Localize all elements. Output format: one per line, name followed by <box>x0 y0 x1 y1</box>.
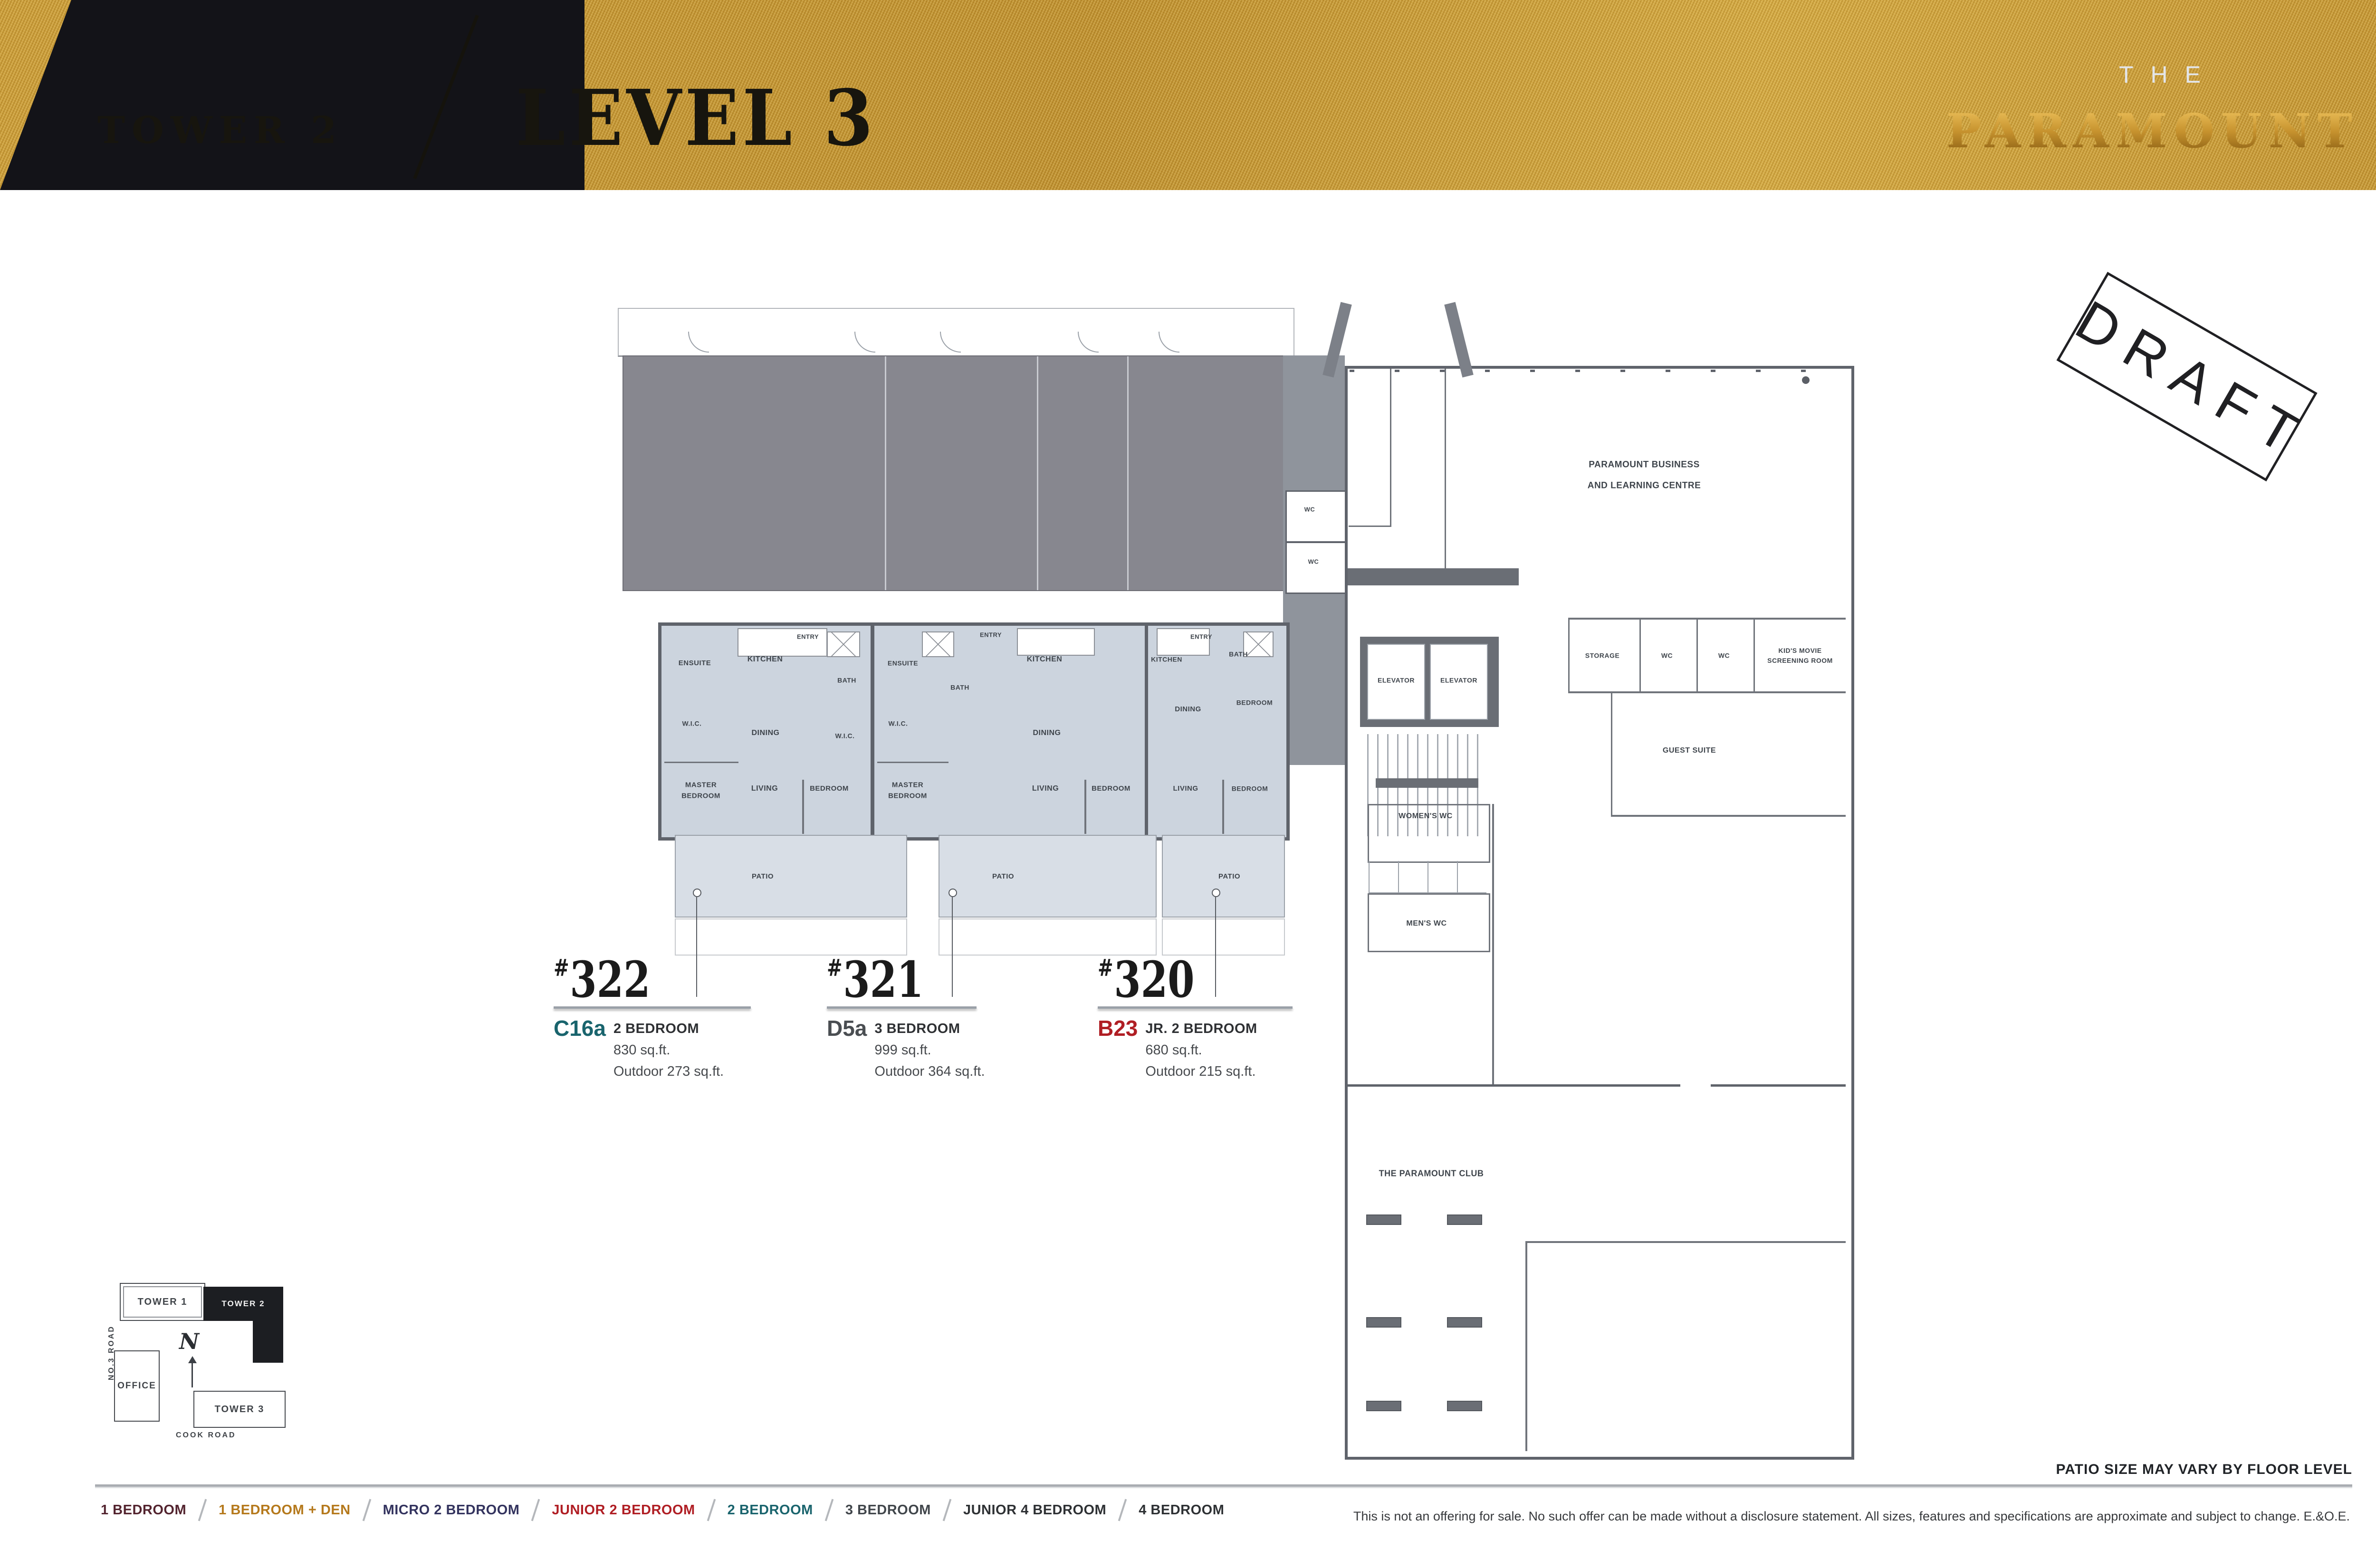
sitemap-tower1-label: TOWER 1 <box>138 1297 188 1308</box>
unit-type: 2 BEDROOM <box>613 1021 724 1037</box>
sitemap-office-label: OFFICE <box>117 1381 156 1391</box>
legend-item: JUNIOR 2 BEDROOM <box>552 1502 695 1518</box>
unit-info-layer: #322C16a2 BEDROOM830 sq.ft.Outdoor 273 s… <box>0 0 2376 1568</box>
patio-leader-dot <box>948 889 957 897</box>
legend-item: 1 BEDROOM + DEN <box>219 1502 350 1518</box>
unit-outdoor-area: Outdoor 273 sq.ft. <box>613 1064 724 1080</box>
unit-plan-code: C16a <box>554 1017 606 1039</box>
legend-item: JUNIOR 4 BEDROOM <box>963 1502 1106 1518</box>
north-arrow-shaft <box>192 1363 193 1387</box>
sitemap-tower2-leg <box>253 1321 283 1363</box>
sitemap-tower3-label: TOWER 3 <box>215 1404 265 1415</box>
sitemap-office: OFFICE <box>114 1350 160 1422</box>
legend-item: 1 BEDROOM <box>101 1502 186 1518</box>
unit-area: 680 sq.ft. <box>1145 1042 1257 1058</box>
disclaimer: This is not an offering for sale. No suc… <box>1353 1509 2350 1524</box>
legend-separator <box>531 1499 540 1521</box>
unit-plan-code: B23 <box>1098 1017 1138 1039</box>
legend-item: 2 BEDROOM <box>728 1502 813 1518</box>
unit-info-block: #321D5a3 BEDROOM999 sq.ft.Outdoor 364 sq… <box>827 957 985 1080</box>
floorplan-sheet: TOWER 2 LEVEL 3 THE PARAMOUNT DRAFT <box>0 0 2376 1568</box>
legend-item: 4 BEDROOM <box>1139 1502 1224 1518</box>
patio-leader-dot <box>693 889 701 897</box>
legend-separator <box>943 1499 952 1521</box>
hash-sign: # <box>1098 954 1113 982</box>
unit-info-block: #322C16a2 BEDROOM830 sq.ft.Outdoor 273 s… <box>554 957 751 1080</box>
site-key-map: TOWER 1 TOWER 2 OFFICE TOWER 3 NO.3 ROAD… <box>109 1277 290 1453</box>
legend-separator <box>707 1499 716 1521</box>
unit-plan-code: D5a <box>827 1017 867 1039</box>
unit-number: #322 <box>554 957 708 1003</box>
legend-item: MICRO 2 BEDROOM <box>383 1502 520 1518</box>
sitemap-tower2: TOWER 2 <box>203 1287 283 1321</box>
hash-sign: # <box>827 954 843 982</box>
footer-rule <box>95 1484 2352 1487</box>
legend-item: 3 BEDROOM <box>845 1502 931 1518</box>
north-arrow-icon <box>188 1356 197 1363</box>
unit-number: #321 <box>827 957 950 1003</box>
legend-separator <box>1118 1499 1127 1521</box>
unit-area: 830 sq.ft. <box>613 1042 724 1058</box>
unit-outdoor-area: Outdoor 215 sq.ft. <box>1145 1064 1257 1080</box>
hash-sign: # <box>554 954 569 982</box>
sitemap-road-cook: COOK ROAD <box>176 1431 236 1440</box>
patio-leader-dot <box>1212 889 1220 897</box>
sitemap-tower3: TOWER 3 <box>193 1391 286 1428</box>
legend-separator <box>198 1499 207 1521</box>
unit-info-block: #320B23JR. 2 BEDROOM680 sq.ft.Outdoor 21… <box>1098 957 1293 1080</box>
sitemap-tower2-label: TOWER 2 <box>221 1299 265 1309</box>
unit-area: 999 sq.ft. <box>874 1042 985 1058</box>
sitemap-tower1: TOWER 1 <box>120 1283 205 1321</box>
unit-type: 3 BEDROOM <box>874 1021 985 1037</box>
unit-type: JR. 2 BEDROOM <box>1145 1021 1257 1037</box>
north-letter: N <box>179 1329 199 1354</box>
unit-outdoor-area: Outdoor 364 sq.ft. <box>874 1064 985 1080</box>
unit-type-legend: 1 BEDROOM1 BEDROOM + DENMICRO 2 BEDROOMJ… <box>101 1495 1224 1525</box>
patio-note: PATIO SIZE MAY VARY BY FLOOR LEVEL <box>2056 1462 2352 1478</box>
unit-number: #320 <box>1098 957 1250 1003</box>
legend-separator <box>362 1499 371 1521</box>
sitemap-road-no3: NO.3 ROAD <box>107 1315 116 1391</box>
legend-separator <box>824 1499 834 1521</box>
